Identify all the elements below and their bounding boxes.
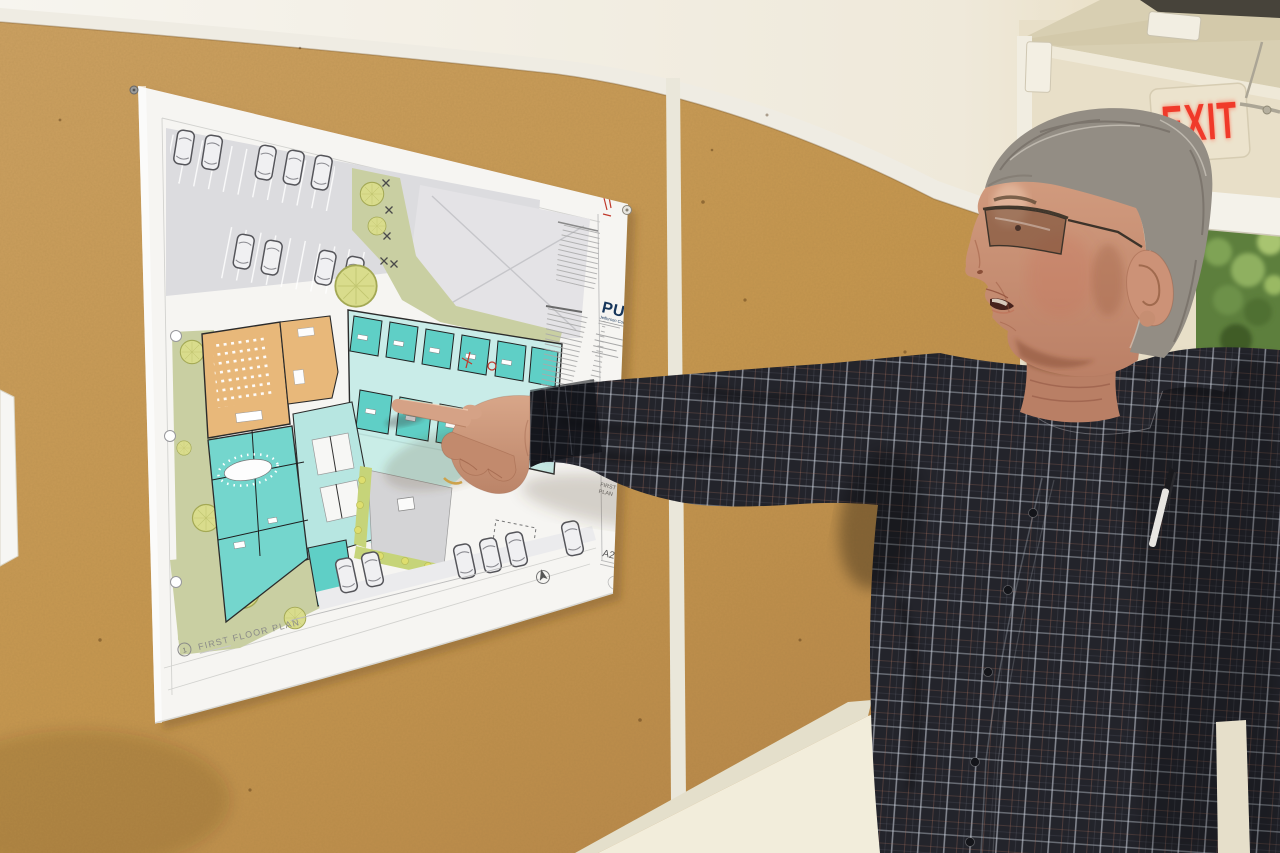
push-pin-top-right bbox=[623, 206, 632, 215]
ceiling-fixture bbox=[1147, 11, 1201, 40]
push-pin-top-left bbox=[130, 86, 138, 94]
photo-scene: EXIT EXIT bbox=[0, 0, 1280, 853]
background-gap bbox=[1216, 720, 1250, 853]
wall-speaker-box bbox=[1025, 42, 1052, 93]
photo-canvas: EXIT EXIT bbox=[0, 0, 1280, 853]
